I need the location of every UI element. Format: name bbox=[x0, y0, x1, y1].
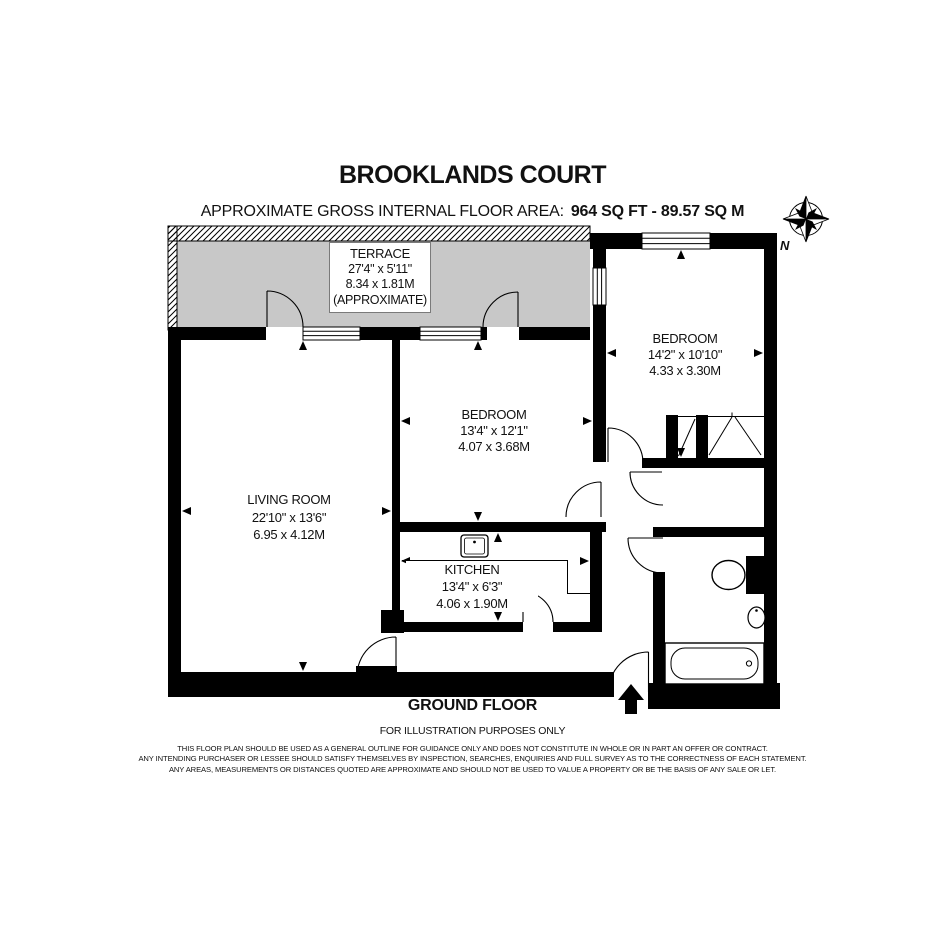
room-label-living-room: LIVING ROOM 22'10" x 13'6" 6.95 x 4.12M bbox=[247, 491, 330, 544]
room-name: KITCHEN bbox=[406, 561, 538, 578]
room-dims-imperial: 22'10" x 13'6" bbox=[247, 509, 330, 527]
room-note: (APPROXIMATE) bbox=[330, 293, 430, 309]
terrace-hatch-left bbox=[168, 226, 177, 330]
floor-plan-page: BROOKLANDS COURT APPROXIMATE GROSS INTER… bbox=[0, 0, 945, 945]
bathtub-icon bbox=[665, 643, 764, 684]
disclaimer-line: ANY INTENDING PURCHASER OR LESSEE SHOULD… bbox=[0, 754, 945, 764]
window-icon bbox=[303, 327, 360, 340]
basin-icon bbox=[748, 607, 765, 628]
kitchen-sink-icon bbox=[461, 535, 488, 557]
disclaimer: THIS FLOOR PLAN SHOULD BE USED AS A GENE… bbox=[0, 744, 945, 775]
room-dims-metric: 4.07 x 3.68M bbox=[458, 439, 530, 455]
room-dims-metric: 6.95 x 4.12M bbox=[247, 526, 330, 544]
disclaimer-line: ANY AREAS, MEASUREMENTS OR DISTANCES QUO… bbox=[0, 765, 945, 775]
room-dims-metric: 4.33 x 3.30M bbox=[648, 363, 722, 379]
room-label-terrace: TERRACE 27'4" x 5'11" 8.34 x 1.81M (APPR… bbox=[329, 242, 431, 313]
room-name: BEDROOM bbox=[458, 407, 530, 423]
room-label-bedroom-1: BEDROOM 14'2" x 10'10" 4.33 x 3.30M bbox=[648, 331, 722, 379]
compass-north-label: N bbox=[780, 238, 789, 253]
room-name: BEDROOM bbox=[648, 331, 722, 347]
room-dims-imperial: 14'2" x 10'10" bbox=[648, 347, 722, 363]
floor-area-line: APPROXIMATE GROSS INTERNAL FLOOR AREA:96… bbox=[0, 203, 945, 221]
floor-area-label: APPROXIMATE GROSS INTERNAL FLOOR AREA: bbox=[201, 203, 564, 220]
room-name: LIVING ROOM bbox=[247, 491, 330, 509]
terrace-hatch-top bbox=[168, 226, 590, 241]
floor-name: GROUND FLOOR bbox=[0, 697, 945, 715]
room-dims-imperial: 13'4" x 6'3" bbox=[406, 578, 538, 595]
window-icon bbox=[593, 268, 606, 305]
room-dims-metric: 8.34 x 1.81M bbox=[330, 277, 430, 293]
room-label-kitchen: KITCHEN 13'4" x 6'3" 4.06 x 1.90M bbox=[406, 561, 538, 612]
room-dims-metric: 4.06 x 1.90M bbox=[406, 595, 538, 612]
window-icon bbox=[642, 233, 710, 249]
illustration-note: FOR ILLUSTRATION PURPOSES ONLY bbox=[0, 725, 945, 737]
room-dims-imperial: 27'4" x 5'11" bbox=[330, 262, 430, 278]
floor-plan-drawing bbox=[0, 0, 945, 945]
room-label-bedroom-2: BEDROOM 13'4" x 12'1" 4.07 x 3.68M bbox=[458, 407, 530, 455]
room-dims-imperial: 13'4" x 12'1" bbox=[458, 423, 530, 439]
page-title: BROOKLANDS COURT bbox=[0, 161, 945, 190]
disclaimer-line: THIS FLOOR PLAN SHOULD BE USED AS A GENE… bbox=[0, 744, 945, 754]
toilet-icon bbox=[712, 556, 764, 594]
room-name: TERRACE bbox=[330, 246, 430, 262]
floor-area-value: 964 SQ FT - 89.57 SQ M bbox=[571, 203, 744, 220]
window-icon bbox=[420, 327, 481, 340]
